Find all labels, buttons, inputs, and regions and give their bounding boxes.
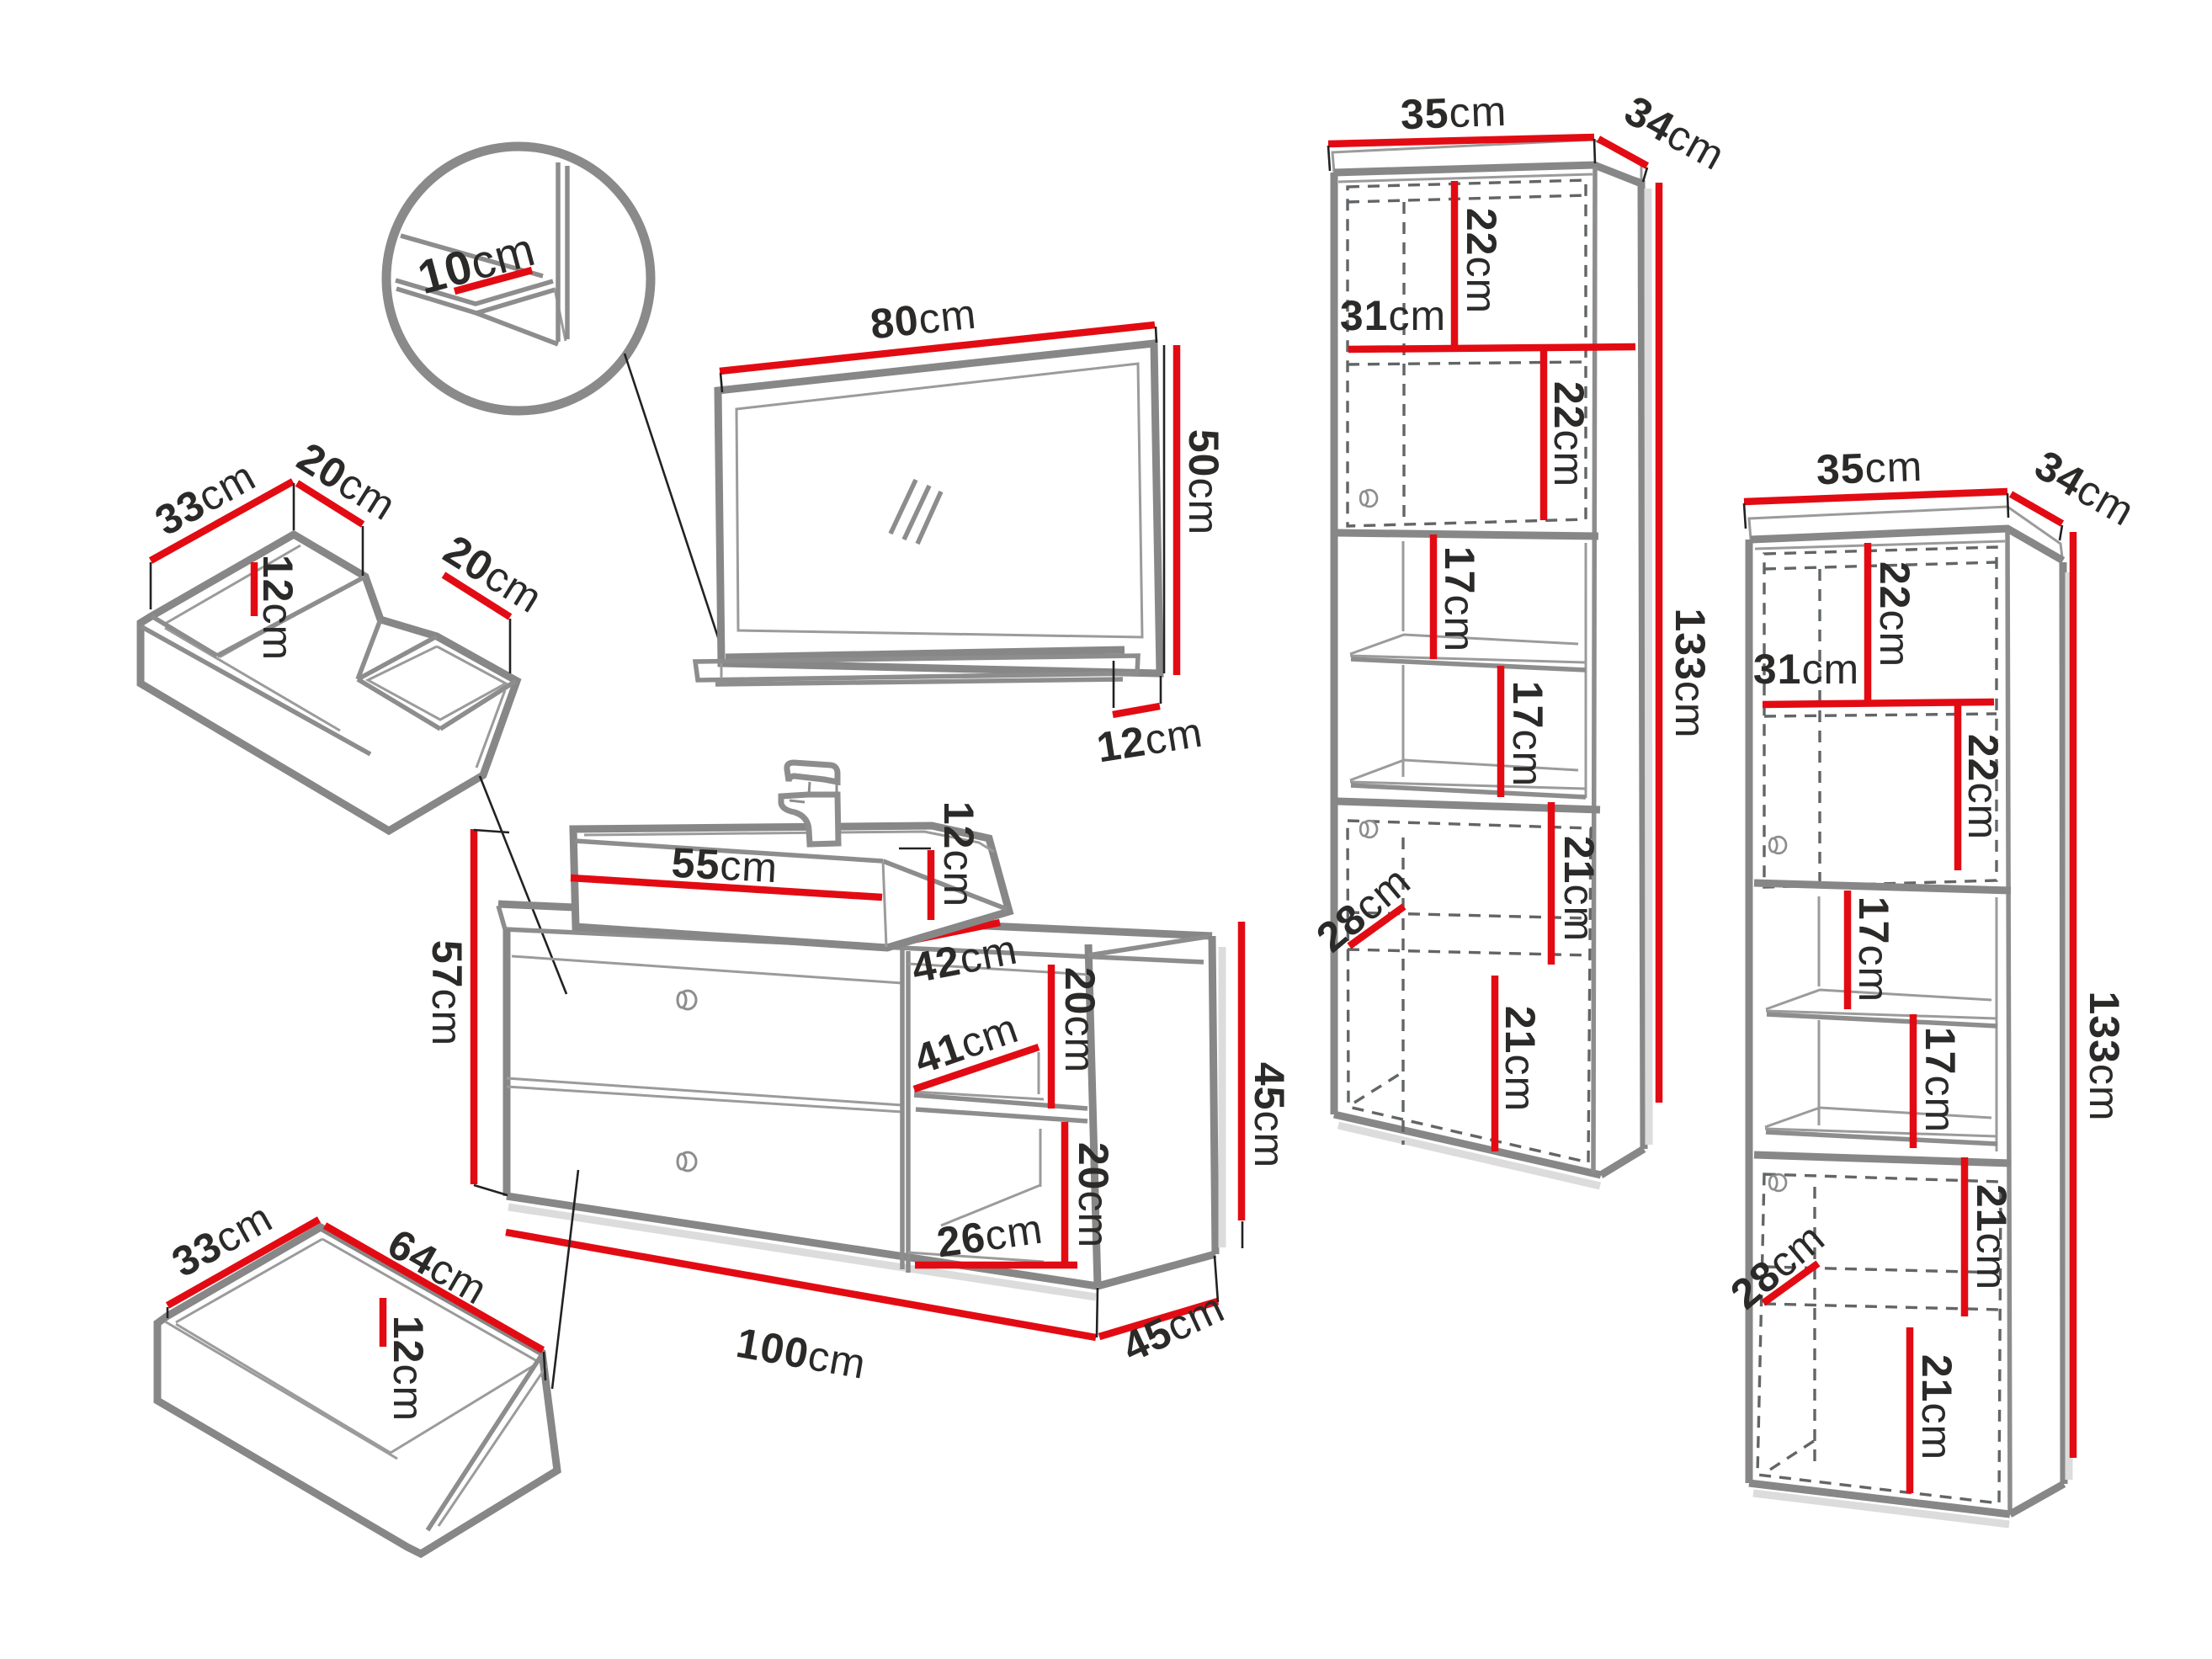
svg-text:35cm: 35cm: [1400, 88, 1507, 138]
svg-text:12cm: 12cm: [935, 801, 982, 907]
svg-text:22cm: 22cm: [1871, 561, 1918, 667]
svg-text:50cm: 50cm: [1180, 429, 1227, 535]
svg-text:22cm: 22cm: [1545, 381, 1593, 487]
svg-text:12cm: 12cm: [254, 555, 301, 661]
svg-text:57cm: 57cm: [423, 940, 471, 1046]
svg-text:20cm: 20cm: [1070, 1142, 1117, 1248]
svg-text:133cm: 133cm: [1667, 608, 1714, 738]
svg-text:21cm: 21cm: [1968, 1184, 2015, 1290]
svg-text:21cm: 21cm: [1497, 1006, 1544, 1112]
svg-text:133cm: 133cm: [2081, 991, 2128, 1121]
svg-text:21cm: 21cm: [1913, 1354, 1960, 1460]
svg-text:55cm: 55cm: [670, 839, 779, 892]
svg-text:20cm: 20cm: [1056, 967, 1103, 1073]
svg-text:12cm: 12cm: [385, 1316, 432, 1422]
svg-text:17cm: 17cm: [1504, 681, 1551, 787]
svg-text:22cm: 22cm: [1959, 734, 2007, 840]
svg-text:31cm: 31cm: [1753, 646, 1859, 693]
svg-text:22cm: 22cm: [1458, 208, 1505, 314]
svg-text:17cm: 17cm: [1436, 546, 1483, 652]
svg-text:17cm: 17cm: [1917, 1027, 1964, 1133]
svg-text:21cm: 21cm: [1555, 836, 1603, 942]
svg-text:35cm: 35cm: [1816, 443, 1923, 493]
svg-text:17cm: 17cm: [1850, 896, 1897, 1002]
svg-text:45cm: 45cm: [1246, 1062, 1293, 1168]
svg-text:31cm: 31cm: [1340, 292, 1446, 339]
